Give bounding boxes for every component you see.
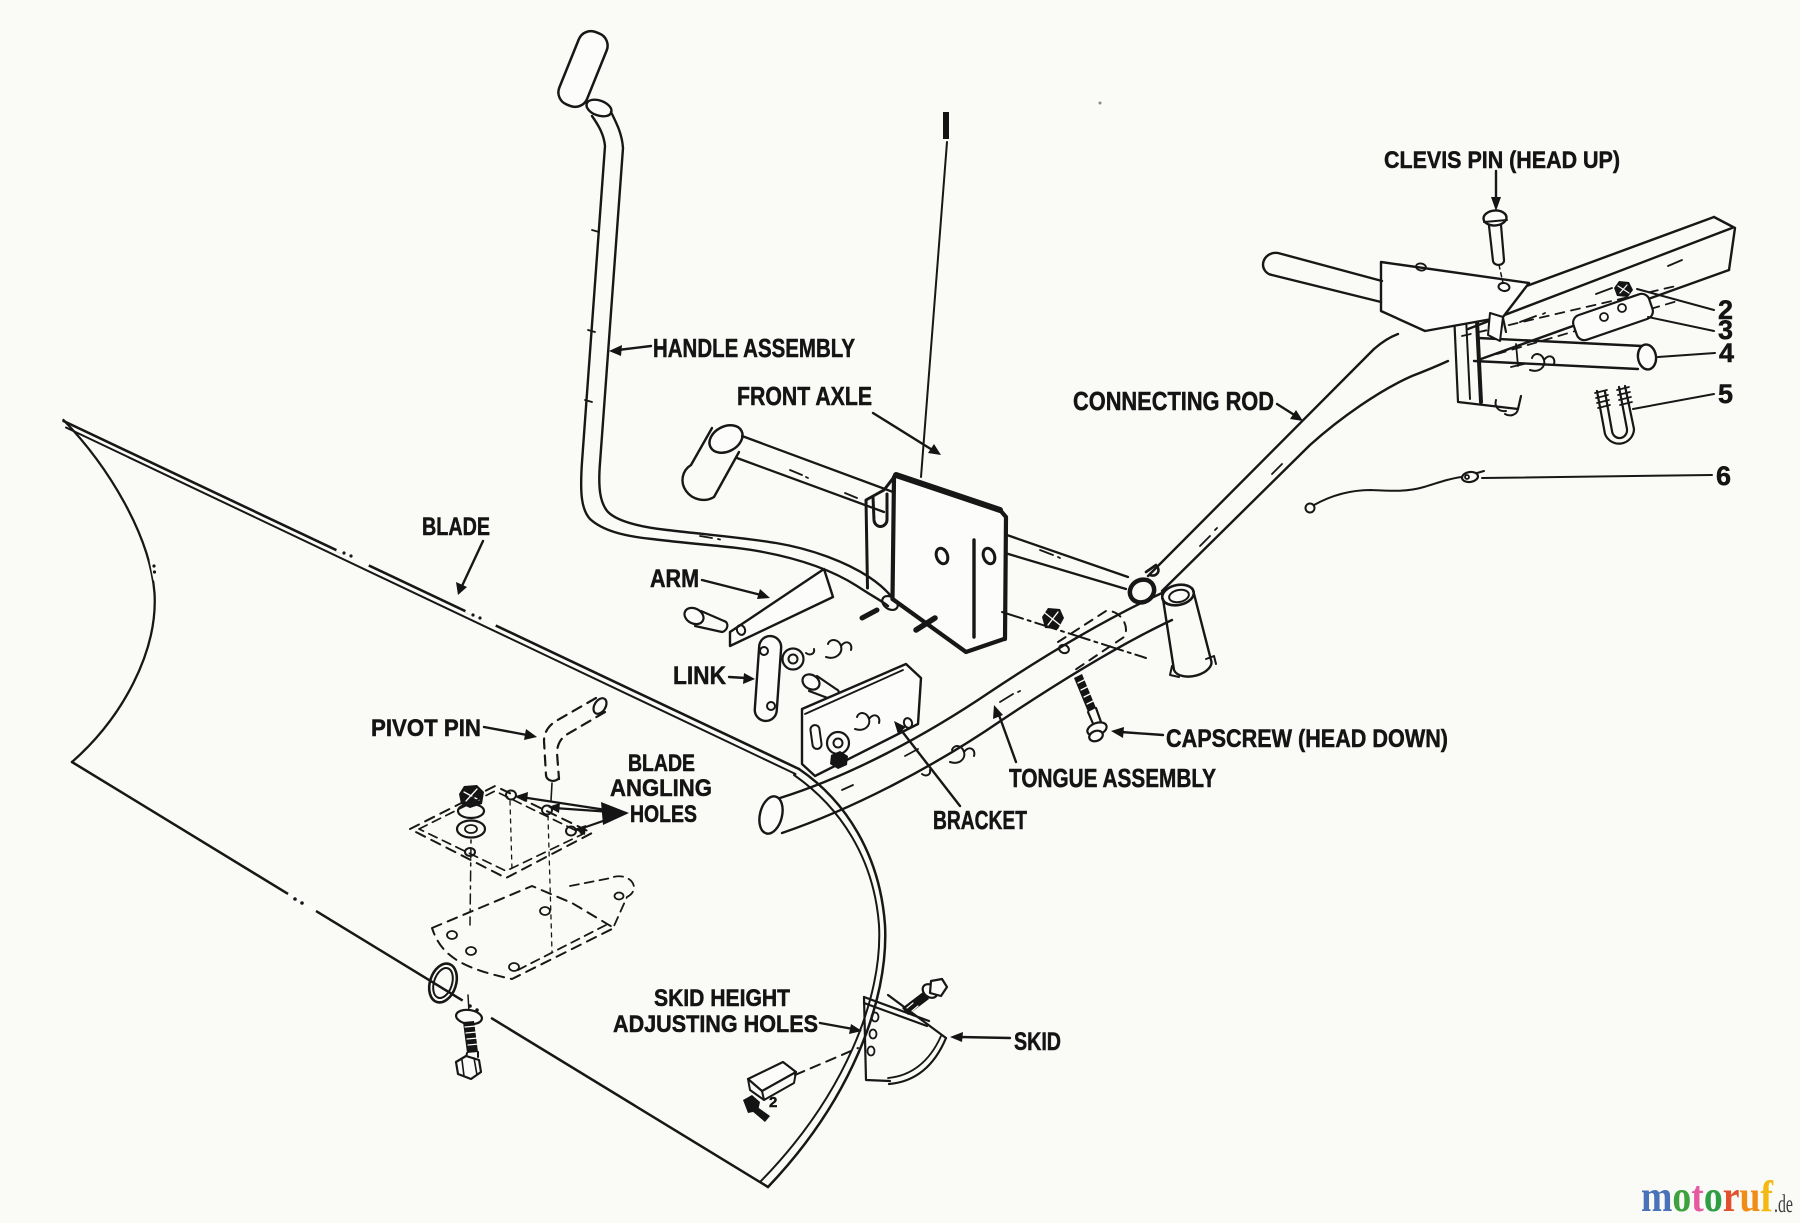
svg-text:SKID: SKID [1014, 1028, 1061, 1056]
svg-text:BRACKET: BRACKET [933, 805, 1027, 835]
svg-text:motoruf: motoruf [1641, 1172, 1774, 1221]
svg-text:ARM: ARM [650, 565, 699, 593]
svg-text:4: 4 [1719, 338, 1734, 368]
svg-text:6: 6 [1716, 461, 1731, 491]
svg-text:LINK: LINK [673, 662, 726, 690]
svg-text:CONNECTING ROD: CONNECTING ROD [1073, 386, 1274, 416]
svg-text:CAPSCREW (HEAD DOWN): CAPSCREW (HEAD DOWN) [1166, 725, 1448, 753]
svg-text:2: 2 [769, 1094, 777, 1111]
svg-text:ADJUSTING HOLES: ADJUSTING HOLES [613, 1011, 818, 1038]
svg-text:5: 5 [1718, 379, 1733, 409]
svg-text:PIVOT PIN: PIVOT PIN [371, 715, 481, 742]
svg-text:ANGLING: ANGLING [610, 775, 712, 802]
svg-text:FRONT AXLE: FRONT AXLE [737, 381, 872, 411]
svg-text:SKID HEIGHT: SKID HEIGHT [654, 985, 790, 1012]
svg-text:HOLES: HOLES [630, 801, 697, 828]
svg-text:TONGUE ASSEMBLY: TONGUE ASSEMBLY [1009, 763, 1216, 793]
svg-text:HANDLE ASSEMBLY: HANDLE ASSEMBLY [653, 333, 855, 363]
svg-text:.de: .de [1774, 1191, 1793, 1218]
svg-text:CLEVIS PIN (HEAD UP): CLEVIS PIN (HEAD UP) [1384, 147, 1620, 174]
svg-text:BLADE: BLADE [422, 513, 490, 541]
svg-text:BLADE: BLADE [628, 750, 695, 777]
